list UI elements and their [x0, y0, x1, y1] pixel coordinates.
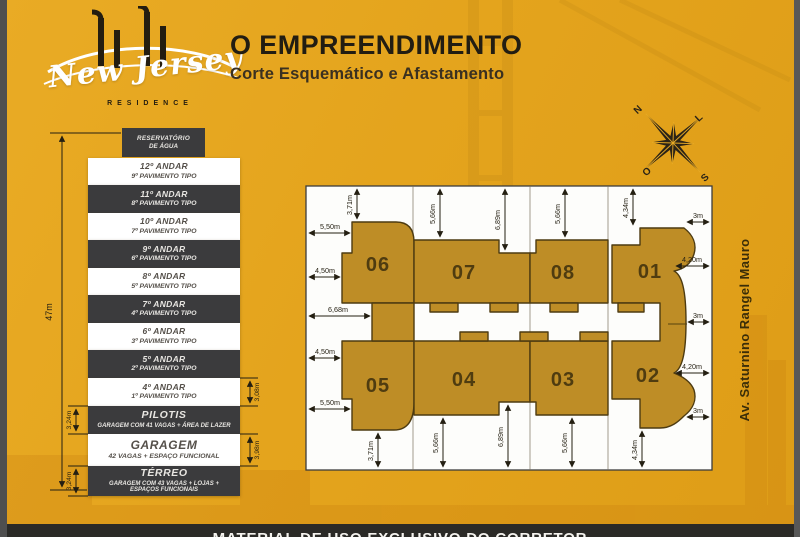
- floor-row-garagem: GARAGEM 42 VAGAS + ESPAÇO FUNCIONAL: [88, 434, 240, 466]
- floor-row-terreo: TÉRREO GARAGEM COM 43 VAGAS + LOJAS + ES…: [88, 466, 240, 496]
- floor-row-6: 6º ANDAR 3º PAVIMENTO TIPO: [88, 323, 240, 350]
- street-name-label: Av. Saturnino Rangel Mauro: [737, 220, 753, 440]
- footer-bar: MATERIAL DE USO EXCLUSIVO DO CORRETOR: [0, 524, 800, 537]
- page-subtitle: Corte Esquemático e Afastamento: [230, 65, 522, 84]
- floor-row-7: 7º ANDAR 4º PAVIMENTO TIPO: [88, 295, 240, 323]
- floor-row-11: 11º ANDAR 8º PAVIMENTO TIPO: [88, 185, 240, 213]
- floor-row-pilotis: PILOTIS GARAGEM COM 41 VAGAS + ÁREA DE L…: [88, 406, 240, 434]
- floor-row-9: 9º ANDAR 6º PAVIMENTO TIPO: [88, 240, 240, 268]
- logo: New Jersey RESIDENCE: [30, 6, 260, 116]
- floor-row-4: 4º ANDAR 1º PAVIMENTO TIPO: [88, 378, 240, 406]
- header: O EMPREENDIMENTO Corte Esquemático e Afa…: [230, 30, 522, 84]
- left-frame-strip: [0, 0, 7, 537]
- floor-row-reservatorio: RESERVATÓRIO DE ÁGUA: [122, 128, 205, 157]
- footer-notice: MATERIAL DE USO EXCLUSIVO DO CORRETOR: [0, 530, 800, 537]
- floor-row-8: 8º ANDAR 5º PAVIMENTO TIPO: [88, 268, 240, 295]
- floor-row-12: 12º ANDAR 9º PAVIMENTO TIPO: [88, 158, 240, 185]
- floor-row-5: 5º ANDAR 2º PAVIMENTO TIPO: [88, 350, 240, 378]
- floor-row-10: 10º ANDAR 7º PAVIMENTO TIPO: [88, 213, 240, 240]
- page-title: O EMPREENDIMENTO: [230, 30, 522, 61]
- logo-residence-text: RESIDENCE: [85, 100, 215, 107]
- right-frame-strip: [794, 0, 800, 537]
- brochure-page: New Jersey RESIDENCE O EMPREENDIMENTO Co…: [0, 0, 800, 537]
